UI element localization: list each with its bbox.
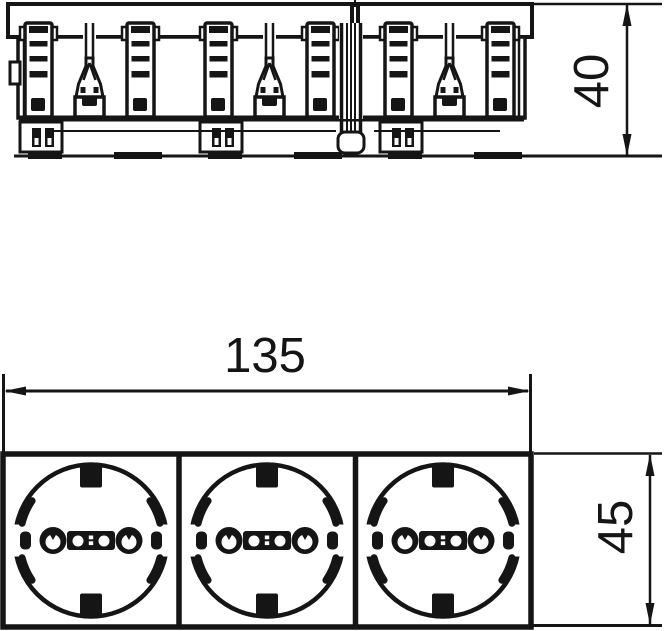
depth-dimension-label: 40 <box>567 21 617 141</box>
drawing-page: 40 135 45 <box>0 0 664 631</box>
module-coupling <box>338 23 364 153</box>
height-dimension-label: 45 <box>591 467 641 587</box>
top-view <box>8 0 662 159</box>
front-view <box>3 454 531 627</box>
dim-width <box>4 374 531 452</box>
width-dimension-label: 135 <box>205 331 325 381</box>
